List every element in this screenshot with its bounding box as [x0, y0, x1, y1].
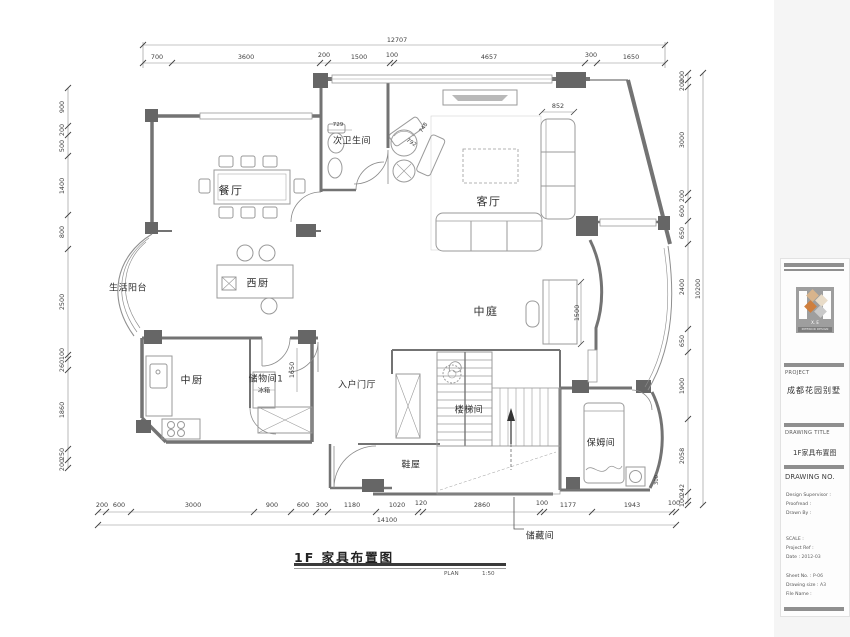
room-label-second-bath: 次卫生间 [333, 134, 371, 147]
dim-right-total: 10200 [694, 279, 702, 299]
dim-bottom: 100 [536, 499, 548, 507]
field-label: Project Ref : [786, 546, 814, 551]
plan-scale: 1:50 [482, 571, 495, 577]
dim-bottom: 200 [96, 501, 108, 509]
room-label-west-kitchen: 西厨 [247, 275, 270, 290]
field-file-name: File Name : [786, 592, 812, 597]
field-label: Date : [786, 555, 800, 560]
dim-bottom: 300 [316, 501, 328, 509]
room-label-storage1: 储物间1 [249, 372, 284, 385]
divider-bar [784, 263, 844, 267]
dim-left: 1860 [58, 402, 66, 418]
drawing-title: 1F家具布置图 [793, 448, 836, 458]
divider-bar [784, 363, 844, 367]
field-drawing-size: Drawing size : A3 [786, 583, 826, 588]
plan-label: PLAN [444, 571, 459, 577]
field-label: Drawing size : [786, 583, 818, 588]
dim-right: 600 [678, 205, 686, 217]
room-label-chinese-kitchen: 中厨 [181, 372, 204, 387]
dim-bottom: 1177 [560, 501, 576, 509]
field-value: 2012-03 [801, 555, 820, 560]
dim-nanny-step: 300 [654, 475, 660, 485]
project-name: 成都花园别墅 [787, 385, 841, 396]
company-logo: X. E INTERIOR DESIGN [796, 287, 834, 333]
label-fridge: 冰箱 [258, 386, 270, 395]
dim-top: 200 [318, 51, 330, 59]
floor-plan-sheet: 餐厅 次卫生间 客厅 西厨 生活阳台 中庭 中厨 储物间1 入户门厅 楼梯间 鞋… [0, 0, 850, 637]
divider-bar [784, 423, 844, 427]
logo-subtitle: INTERIOR DESIGN [798, 327, 832, 332]
logo-name: X. E [796, 320, 834, 325]
bathroom-fixtures [328, 124, 345, 178]
dim-left: 100 [58, 348, 66, 360]
title-block: X. E INTERIOR DESIGN PROJECT 成都花园别墅 DRAW… [780, 258, 850, 617]
dim-toilet: 729 [333, 122, 344, 128]
dim-bottom: 1020 [389, 501, 405, 509]
project-label: PROJECT [785, 370, 810, 376]
dim-top: 100 [386, 51, 398, 59]
dim-left: 200 [58, 459, 66, 471]
field-proofread: Proofread : [786, 502, 811, 507]
dim-bottom: 600 [297, 501, 309, 509]
drawing-title-label: DRAWING TITLE [785, 430, 830, 436]
dim-sofa: 852 [552, 102, 564, 110]
room-label-atrium: 中庭 [474, 303, 499, 319]
dim-right: 2058 [678, 448, 686, 464]
dim-bottom-total: 14100 [377, 516, 397, 524]
dim-top: 300 [585, 51, 597, 59]
dim-right: 200 [678, 190, 686, 202]
dim-right: 650 [678, 335, 686, 347]
dim-bottom: 120 [415, 499, 427, 507]
room-label-stairwell: 楼梯间 [455, 403, 484, 416]
dim-left: 200 [58, 124, 66, 136]
divider-bar [784, 269, 844, 271]
room-label-entry-foyer: 入户门厅 [338, 378, 376, 391]
field-label: Drawn By : [786, 511, 811, 516]
plan-drawing [0, 0, 850, 637]
field-label: SCALE : [786, 537, 804, 542]
dim-right: 200 [678, 79, 686, 91]
field-project-ref: Project Ref : [786, 546, 814, 551]
field-label: Proofread : [786, 502, 811, 507]
room-label-dining: 餐厅 [219, 182, 244, 198]
field-value: A3 [820, 583, 826, 588]
field-label: File Name : [786, 592, 812, 597]
field-value: P-06 [813, 574, 823, 579]
field-sheet-no: Sheet No. : P-06 [786, 574, 823, 579]
room-label-life-balcony: 生活阳台 [109, 281, 147, 294]
dim-bottom: 100 [668, 499, 680, 507]
staircase [396, 352, 560, 494]
dim-top: 700 [151, 53, 163, 61]
dim-right: 3000 [678, 132, 686, 148]
title-underline [294, 563, 506, 566]
dim-bottom: 1180 [344, 501, 360, 509]
dim-top: 1500 [351, 53, 367, 61]
field-drawn-by: Drawn By : [786, 511, 811, 516]
field-label: Design Supervisor : [786, 493, 831, 498]
dim-bottom: 600 [113, 501, 125, 509]
room-label-shoe-room: 鞋屋 [401, 458, 420, 471]
dim-left: 900 [58, 101, 66, 113]
dim-bottom: 900 [266, 501, 278, 509]
field-design-supervisor: Design Supervisor : [786, 493, 831, 498]
room-label-storage-cellar: 储藏间 [526, 529, 555, 542]
dim-right: 1900 [678, 378, 686, 394]
dim-top: 1650 [623, 53, 639, 61]
field-scale: SCALE : [786, 537, 804, 542]
dining-set [199, 156, 305, 218]
dim-bottom: 3000 [185, 501, 201, 509]
dim-storage-door: 1650 [288, 362, 296, 378]
dim-top: 3600 [238, 53, 254, 61]
dim-right: 2400 [678, 279, 686, 295]
divider-bar [784, 465, 844, 469]
dim-bottom: 2860 [474, 501, 490, 509]
room-label-living: 客厅 [477, 193, 502, 209]
dim-left: 2500 [58, 294, 66, 310]
title-underline-thin [294, 568, 506, 569]
dim-left: 800 [58, 226, 66, 238]
dim-left: 500 [58, 140, 66, 152]
dim-top-total: 12707 [387, 36, 407, 44]
living-room-set [388, 90, 575, 251]
field-date: Date : 2012-03 [786, 555, 821, 560]
dim-left: 1400 [58, 178, 66, 194]
dim-top: 4657 [481, 53, 497, 61]
divider-bar [784, 607, 844, 611]
logo-bar-right [823, 291, 831, 319]
dim-piano: 1500 [573, 305, 581, 321]
field-label: Sheet No. : [786, 574, 811, 579]
dim-left: 260 [58, 360, 66, 372]
drawing-no-label: DRAWING NO. [785, 473, 835, 481]
atrium-furniture [443, 280, 577, 383]
dim-right: 650 [678, 227, 686, 239]
dim-bottom: 1943 [624, 501, 640, 509]
room-label-nanny-room: 保姆间 [587, 436, 616, 449]
